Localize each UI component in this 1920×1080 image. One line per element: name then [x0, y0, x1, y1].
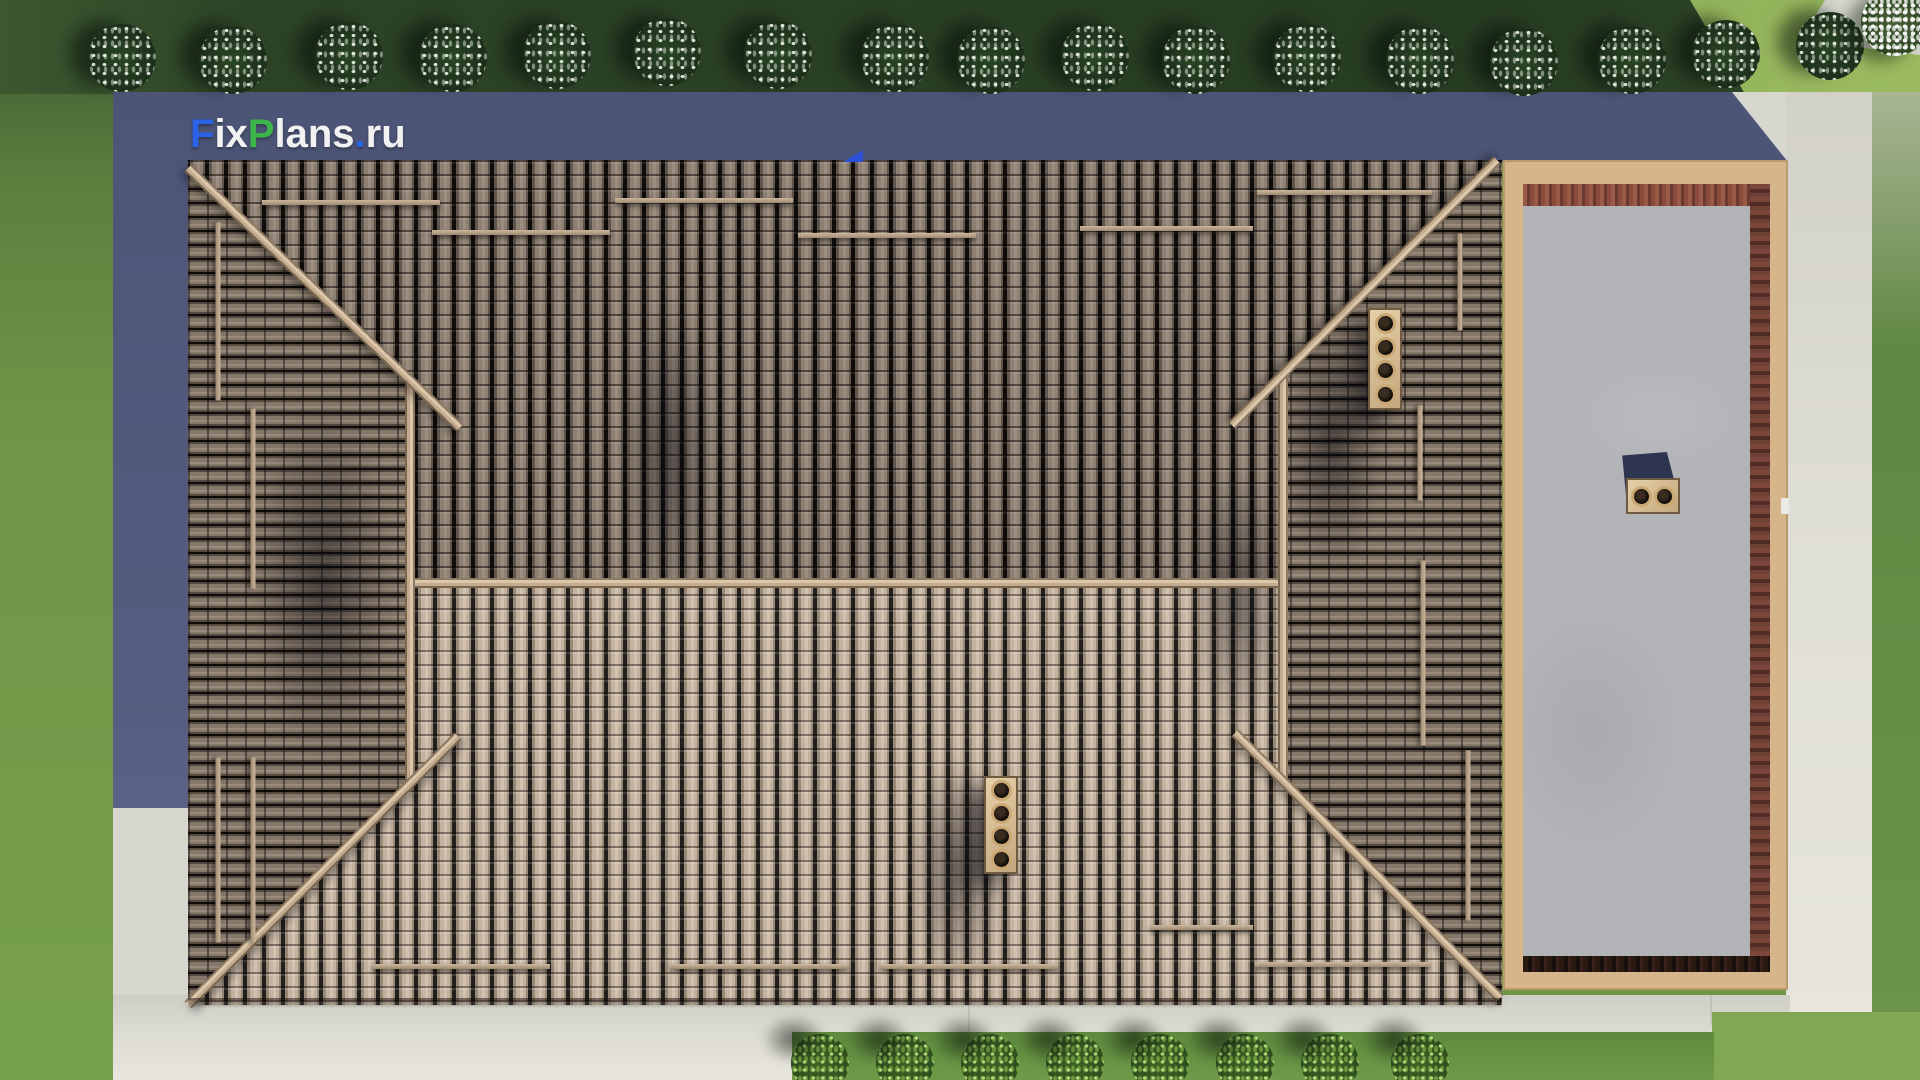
- watermark-fixplans: FixPlans.ru: [190, 112, 406, 157]
- snow-guard-bar: [1255, 962, 1430, 967]
- chimney-flue-icon: [1375, 360, 1396, 381]
- snow-guard-bar: [432, 230, 610, 235]
- chimney-flue-icon: [991, 849, 1012, 870]
- blossom-tree: [1598, 26, 1666, 94]
- blossom-tree: [523, 21, 591, 89]
- concrete-driveway: [113, 1032, 795, 1080]
- garage-chimney: [1626, 478, 1680, 514]
- blossom-tree: [315, 22, 383, 90]
- chimney-flue-icon: [1375, 313, 1396, 334]
- roof-chimney: [984, 776, 1018, 874]
- watermark-letter: F: [190, 112, 214, 156]
- blossom-tree: [1490, 28, 1558, 96]
- watermark-letter: .: [355, 112, 366, 156]
- blossom-tree: [1386, 26, 1454, 94]
- blossom-tree: [419, 24, 487, 92]
- snow-guard-bar: [1466, 751, 1471, 921]
- blossom-tree: [633, 18, 701, 86]
- flat-roof-garage: [1503, 160, 1788, 990]
- chimney-flue-icon: [1375, 384, 1396, 405]
- frame-notch: [1781, 498, 1789, 514]
- snow-guard-bar: [1458, 234, 1463, 331]
- blossom-tree: [1162, 26, 1230, 94]
- roof-chimney: [1368, 308, 1402, 410]
- snow-guard-bar: [1150, 925, 1253, 930]
- snow-guard-bar: [670, 964, 848, 969]
- snow-guard-bar: [1080, 226, 1253, 231]
- blossom-tree: [1061, 23, 1129, 91]
- grass-lawn-bottom-right: [1712, 1012, 1920, 1080]
- concrete-apron-right: [1786, 92, 1874, 1015]
- brick-parapet-bottom: [1523, 956, 1770, 972]
- blossom-tree: [88, 24, 156, 92]
- blossom-tree: [1796, 12, 1864, 80]
- snow-guard-bar: [1421, 561, 1426, 746]
- brick-parapet-right: [1750, 184, 1770, 960]
- watermark-letter: lans: [274, 112, 354, 156]
- blossom-tree: [744, 21, 812, 89]
- roof-soft-shadow: [618, 290, 718, 610]
- roof-soft-shadow: [1188, 460, 1288, 740]
- flat-roof-slab: [1523, 206, 1750, 956]
- snow-guard-bar: [880, 964, 1058, 969]
- chimney-flue-icon: [1654, 486, 1675, 507]
- house-cast-shadow-left: [113, 92, 191, 808]
- snow-guard-bar: [216, 223, 221, 401]
- snow-guard-bar: [1418, 406, 1423, 501]
- brick-parapet-top: [1523, 184, 1770, 206]
- blossom-tree: [1692, 20, 1760, 88]
- grass-lawn-right: [1872, 92, 1920, 1017]
- blossom-tree: [199, 26, 267, 94]
- snow-guard-bar: [251, 409, 256, 589]
- watermark-letter: P: [248, 112, 275, 156]
- main-tiled-roof: [188, 160, 1502, 1005]
- snow-guard-bar: [615, 198, 793, 203]
- blossom-tree: [861, 24, 929, 92]
- snow-guard-bar: [372, 964, 550, 969]
- snow-guard-bar: [251, 758, 256, 943]
- ridge-cap: [1278, 375, 1288, 780]
- snow-guard-bar: [216, 758, 221, 943]
- watermark-letter: ix: [214, 112, 247, 156]
- chimney-flue-icon: [1631, 486, 1652, 507]
- aerial-house-roof-render: FixPlans.ru: [0, 0, 1920, 1080]
- snow-guard-bar: [798, 233, 976, 238]
- chimney-flue-icon: [991, 780, 1012, 801]
- chimney-flue-icon: [991, 826, 1012, 847]
- snow-guard-bar: [1257, 190, 1432, 195]
- ridge-cap: [405, 380, 415, 783]
- watermark-letter: ru: [366, 112, 406, 156]
- eave-shadow: [188, 998, 1502, 1008]
- snow-guard-bar: [262, 200, 440, 205]
- chimney-flue-icon: [991, 803, 1012, 824]
- blossom-tree: [1273, 24, 1341, 92]
- chimney-flue-icon: [1375, 337, 1396, 358]
- grass-lawn-left: [0, 0, 120, 1080]
- roof-soft-shadow: [248, 390, 398, 770]
- ridge-cap: [410, 578, 1283, 588]
- blossom-tree: [957, 26, 1025, 94]
